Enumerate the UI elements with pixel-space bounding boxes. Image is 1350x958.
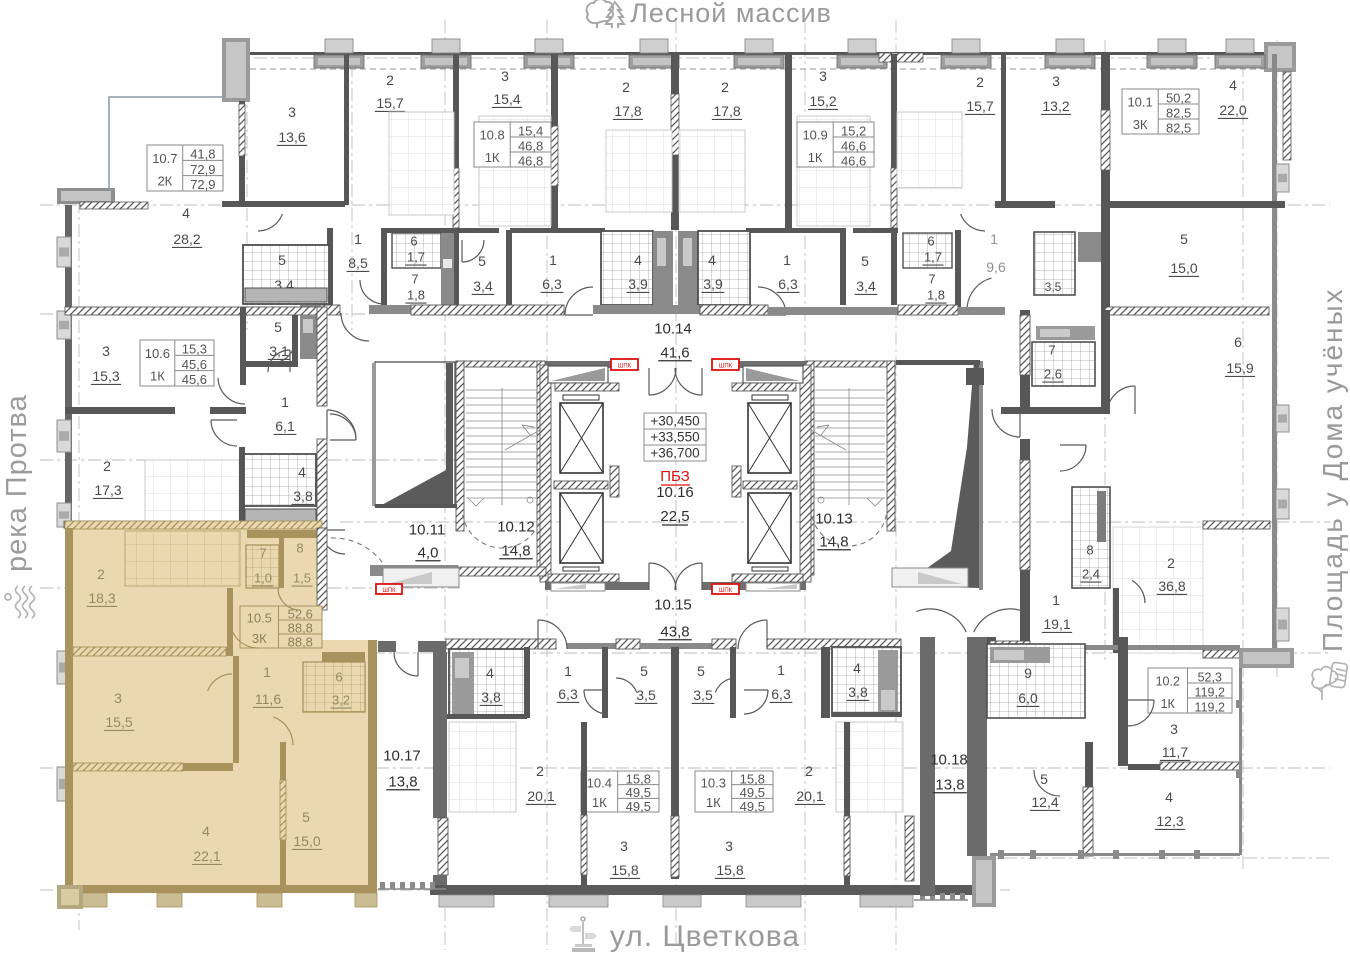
svg-text:3,5: 3,5 xyxy=(636,687,656,703)
svg-text:5: 5 xyxy=(861,253,869,269)
svg-text:1,8: 1,8 xyxy=(927,288,945,303)
svg-text:2: 2 xyxy=(721,79,729,95)
svg-text:6: 6 xyxy=(410,234,417,249)
svg-text:46,8: 46,8 xyxy=(518,153,543,168)
svg-text:9,6: 9,6 xyxy=(986,259,1006,275)
svg-text:2: 2 xyxy=(103,458,111,474)
svg-text:15,3: 15,3 xyxy=(92,368,119,384)
svg-text:14,8: 14,8 xyxy=(501,542,530,559)
svg-text:10.7: 10.7 xyxy=(152,151,177,166)
svg-text:2: 2 xyxy=(536,763,544,779)
svg-text:1К: 1К xyxy=(1161,697,1176,711)
svg-text:ШПК: ШПК xyxy=(719,588,733,594)
svg-text:+33,550: +33,550 xyxy=(650,430,699,445)
svg-text:4: 4 xyxy=(202,823,210,839)
svg-text:3: 3 xyxy=(1170,721,1178,737)
svg-text:10.14: 10.14 xyxy=(654,320,692,337)
svg-text:20,1: 20,1 xyxy=(527,788,554,804)
svg-text:2: 2 xyxy=(805,763,813,779)
svg-text:13,2: 13,2 xyxy=(1042,98,1069,114)
svg-text:5: 5 xyxy=(1180,231,1188,247)
svg-text:22,1: 22,1 xyxy=(193,848,220,864)
svg-text:7: 7 xyxy=(411,272,418,287)
svg-text:ПБЗ: ПБЗ xyxy=(660,468,690,485)
svg-text:3К: 3К xyxy=(252,631,267,646)
svg-text:15,2: 15,2 xyxy=(809,93,836,109)
svg-text:72,9: 72,9 xyxy=(190,162,215,177)
svg-text:7: 7 xyxy=(1048,343,1055,358)
svg-text:49,5: 49,5 xyxy=(740,799,765,814)
svg-text:15,0: 15,0 xyxy=(1170,260,1197,276)
svg-text:17,8: 17,8 xyxy=(713,103,740,119)
svg-text:5: 5 xyxy=(274,319,282,335)
svg-text:3,4: 3,4 xyxy=(856,278,876,294)
svg-text:10.15: 10.15 xyxy=(654,596,692,613)
svg-text:3,2: 3,2 xyxy=(332,693,350,708)
svg-text:20,1: 20,1 xyxy=(796,788,823,804)
svg-text:10.9: 10.9 xyxy=(802,128,827,143)
svg-text:2: 2 xyxy=(1167,555,1175,571)
svg-text:1К: 1К xyxy=(150,369,165,384)
svg-text:6,3: 6,3 xyxy=(778,276,798,292)
svg-text:1К: 1К xyxy=(808,150,823,165)
svg-text:4: 4 xyxy=(182,205,190,221)
svg-text:15,8: 15,8 xyxy=(716,862,743,878)
svg-text:3: 3 xyxy=(819,68,827,84)
svg-text:1: 1 xyxy=(281,394,289,410)
svg-text:2: 2 xyxy=(386,72,394,88)
svg-text:1: 1 xyxy=(354,231,362,247)
svg-text:6: 6 xyxy=(335,670,342,685)
svg-text:10.18: 10.18 xyxy=(930,751,968,768)
svg-text:18,3: 18,3 xyxy=(88,590,115,606)
svg-text:15,0: 15,0 xyxy=(293,833,320,849)
svg-text:10.5: 10.5 xyxy=(247,611,272,626)
svg-text:5: 5 xyxy=(278,252,286,268)
svg-text:10.3: 10.3 xyxy=(701,775,726,790)
svg-text:10.2: 10.2 xyxy=(1156,675,1180,689)
svg-text:1: 1 xyxy=(564,663,572,679)
svg-text:3,5: 3,5 xyxy=(693,687,713,703)
svg-text:13,8: 13,8 xyxy=(388,773,417,790)
svg-text:1,7: 1,7 xyxy=(924,250,942,265)
svg-text:6,0: 6,0 xyxy=(1018,690,1038,706)
svg-text:1: 1 xyxy=(549,252,557,268)
svg-text:ШПК: ШПК xyxy=(382,588,396,594)
svg-text:15,4: 15,4 xyxy=(493,91,520,107)
svg-text:14,8: 14,8 xyxy=(819,533,848,550)
svg-text:13,8: 13,8 xyxy=(935,776,964,793)
svg-text:9: 9 xyxy=(1024,665,1032,681)
svg-text:5: 5 xyxy=(478,253,486,269)
svg-text:1: 1 xyxy=(783,252,791,268)
svg-text:45,6: 45,6 xyxy=(182,357,207,372)
svg-text:3: 3 xyxy=(620,838,628,854)
svg-text:1,7: 1,7 xyxy=(407,250,425,265)
svg-text:2К: 2К xyxy=(157,174,172,189)
svg-text:3: 3 xyxy=(114,690,122,706)
svg-text:6: 6 xyxy=(1234,334,1242,350)
svg-text:88,8: 88,8 xyxy=(288,635,313,650)
svg-text:2: 2 xyxy=(976,74,984,90)
svg-text:3,4: 3,4 xyxy=(473,278,493,294)
svg-text:3,8: 3,8 xyxy=(848,684,868,700)
svg-text:15,2: 15,2 xyxy=(841,123,866,138)
svg-text:119,2: 119,2 xyxy=(1195,700,1225,714)
svg-text:11,6: 11,6 xyxy=(255,691,281,707)
svg-text:50,2: 50,2 xyxy=(1166,90,1191,105)
svg-text:10.13: 10.13 xyxy=(815,510,853,527)
svg-text:река Протва: река Протва xyxy=(1,394,33,572)
svg-text:10.6: 10.6 xyxy=(145,346,170,361)
svg-text:Площадь у Дома учёных: Площадь у Дома учёных xyxy=(1317,287,1348,652)
svg-text:1К: 1К xyxy=(592,795,607,810)
svg-text:45,6: 45,6 xyxy=(182,372,207,387)
svg-text:4: 4 xyxy=(1229,77,1237,93)
svg-text:3: 3 xyxy=(501,68,509,84)
svg-text:4: 4 xyxy=(634,252,642,268)
svg-text:7: 7 xyxy=(259,546,266,561)
svg-text:4,0: 4,0 xyxy=(418,544,439,561)
svg-text:46,6: 46,6 xyxy=(841,138,866,153)
svg-text:5: 5 xyxy=(697,663,705,679)
svg-text:10.17: 10.17 xyxy=(383,747,421,764)
svg-text:15,7: 15,7 xyxy=(966,98,993,114)
svg-text:1,8: 1,8 xyxy=(407,288,425,303)
svg-text:41,6: 41,6 xyxy=(660,344,689,361)
svg-text:1К: 1К xyxy=(706,795,721,810)
svg-text:41,8: 41,8 xyxy=(190,147,215,162)
svg-text:82,5: 82,5 xyxy=(1166,105,1191,120)
svg-text:1,0: 1,0 xyxy=(254,571,272,586)
svg-text:1: 1 xyxy=(777,662,785,678)
svg-text:8,5: 8,5 xyxy=(348,255,368,271)
svg-text:11,7: 11,7 xyxy=(1162,744,1188,760)
svg-text:4: 4 xyxy=(486,665,494,681)
svg-text:6,1: 6,1 xyxy=(275,418,295,434)
svg-text:10.16: 10.16 xyxy=(656,484,694,501)
svg-text:3,8: 3,8 xyxy=(481,689,501,705)
svg-text:ШПК: ШПК xyxy=(719,364,733,370)
svg-text:4: 4 xyxy=(298,464,306,480)
svg-text:15,5: 15,5 xyxy=(105,714,132,730)
svg-text:ул. Цветкова: ул. Цветкова xyxy=(610,920,800,953)
svg-text:8: 8 xyxy=(296,541,303,556)
svg-text:1,5: 1,5 xyxy=(293,571,311,586)
svg-text:4: 4 xyxy=(708,252,716,268)
svg-text:2,6: 2,6 xyxy=(1044,367,1062,382)
svg-text:88,8: 88,8 xyxy=(288,621,313,636)
svg-text:10.1: 10.1 xyxy=(1127,95,1152,110)
svg-text:19,1: 19,1 xyxy=(1043,616,1070,632)
svg-text:3К: 3К xyxy=(1133,117,1148,132)
svg-text:Лесной массив: Лесной массив xyxy=(630,0,832,28)
svg-text:4: 4 xyxy=(853,660,861,676)
svg-text:ШПК: ШПК xyxy=(618,364,632,370)
svg-text:13,6: 13,6 xyxy=(278,129,305,145)
svg-text:52,3: 52,3 xyxy=(1198,670,1222,684)
svg-text:1: 1 xyxy=(263,664,271,680)
svg-text:3,9: 3,9 xyxy=(703,276,723,292)
svg-text:36,8: 36,8 xyxy=(1158,578,1185,594)
svg-text:5: 5 xyxy=(640,663,648,679)
svg-text:28,2: 28,2 xyxy=(173,231,200,247)
svg-text:10.8: 10.8 xyxy=(479,128,504,143)
svg-text:46,6: 46,6 xyxy=(841,153,866,168)
svg-text:3,5: 3,5 xyxy=(1045,280,1062,294)
svg-text:6: 6 xyxy=(927,234,934,249)
svg-text:15,9: 15,9 xyxy=(1226,360,1253,376)
svg-text:22,0: 22,0 xyxy=(1219,102,1246,118)
svg-text:46,8: 46,8 xyxy=(518,138,543,153)
svg-text:3: 3 xyxy=(725,838,733,854)
svg-text:2: 2 xyxy=(97,566,105,582)
svg-text:10.11: 10.11 xyxy=(409,521,445,538)
svg-text:6,3: 6,3 xyxy=(558,686,578,702)
svg-text:15,3: 15,3 xyxy=(182,342,207,357)
svg-text:1К: 1К xyxy=(485,150,500,165)
svg-text:1: 1 xyxy=(1052,592,1060,608)
svg-text:22,5: 22,5 xyxy=(660,508,689,525)
svg-text:49,5: 49,5 xyxy=(626,799,651,814)
svg-text:2: 2 xyxy=(622,79,630,95)
svg-text:15,8: 15,8 xyxy=(611,862,638,878)
svg-text:15,7: 15,7 xyxy=(376,95,403,111)
svg-text:3: 3 xyxy=(288,104,296,120)
svg-text:+30,450: +30,450 xyxy=(650,414,699,429)
svg-text:12,4: 12,4 xyxy=(1031,794,1058,810)
svg-text:+36,700: +36,700 xyxy=(650,446,699,461)
svg-text:6,3: 6,3 xyxy=(771,686,791,702)
svg-text:3,9: 3,9 xyxy=(628,276,648,292)
svg-text:17,8: 17,8 xyxy=(614,103,641,119)
svg-text:12,3: 12,3 xyxy=(1156,813,1183,829)
svg-text:5: 5 xyxy=(1040,771,1048,787)
svg-text:3,8: 3,8 xyxy=(293,488,313,504)
svg-text:5: 5 xyxy=(302,809,310,825)
svg-text:15,4: 15,4 xyxy=(518,123,543,138)
svg-text:2,4: 2,4 xyxy=(1082,567,1100,582)
svg-text:17,3: 17,3 xyxy=(94,482,121,498)
svg-text:6,3: 6,3 xyxy=(542,276,562,292)
svg-text:10.12: 10.12 xyxy=(497,518,535,535)
svg-text:4: 4 xyxy=(1165,789,1173,805)
svg-text:3: 3 xyxy=(1052,73,1060,89)
svg-text:119,2: 119,2 xyxy=(1195,685,1225,699)
svg-text:7: 7 xyxy=(928,272,935,287)
svg-text:43,8: 43,8 xyxy=(660,623,689,640)
svg-text:10.4: 10.4 xyxy=(587,775,612,790)
svg-text:82,5: 82,5 xyxy=(1166,120,1191,135)
svg-text:1: 1 xyxy=(990,231,998,247)
svg-text:8: 8 xyxy=(1086,543,1093,558)
svg-text:3: 3 xyxy=(102,343,110,359)
svg-text:72,9: 72,9 xyxy=(190,177,215,192)
